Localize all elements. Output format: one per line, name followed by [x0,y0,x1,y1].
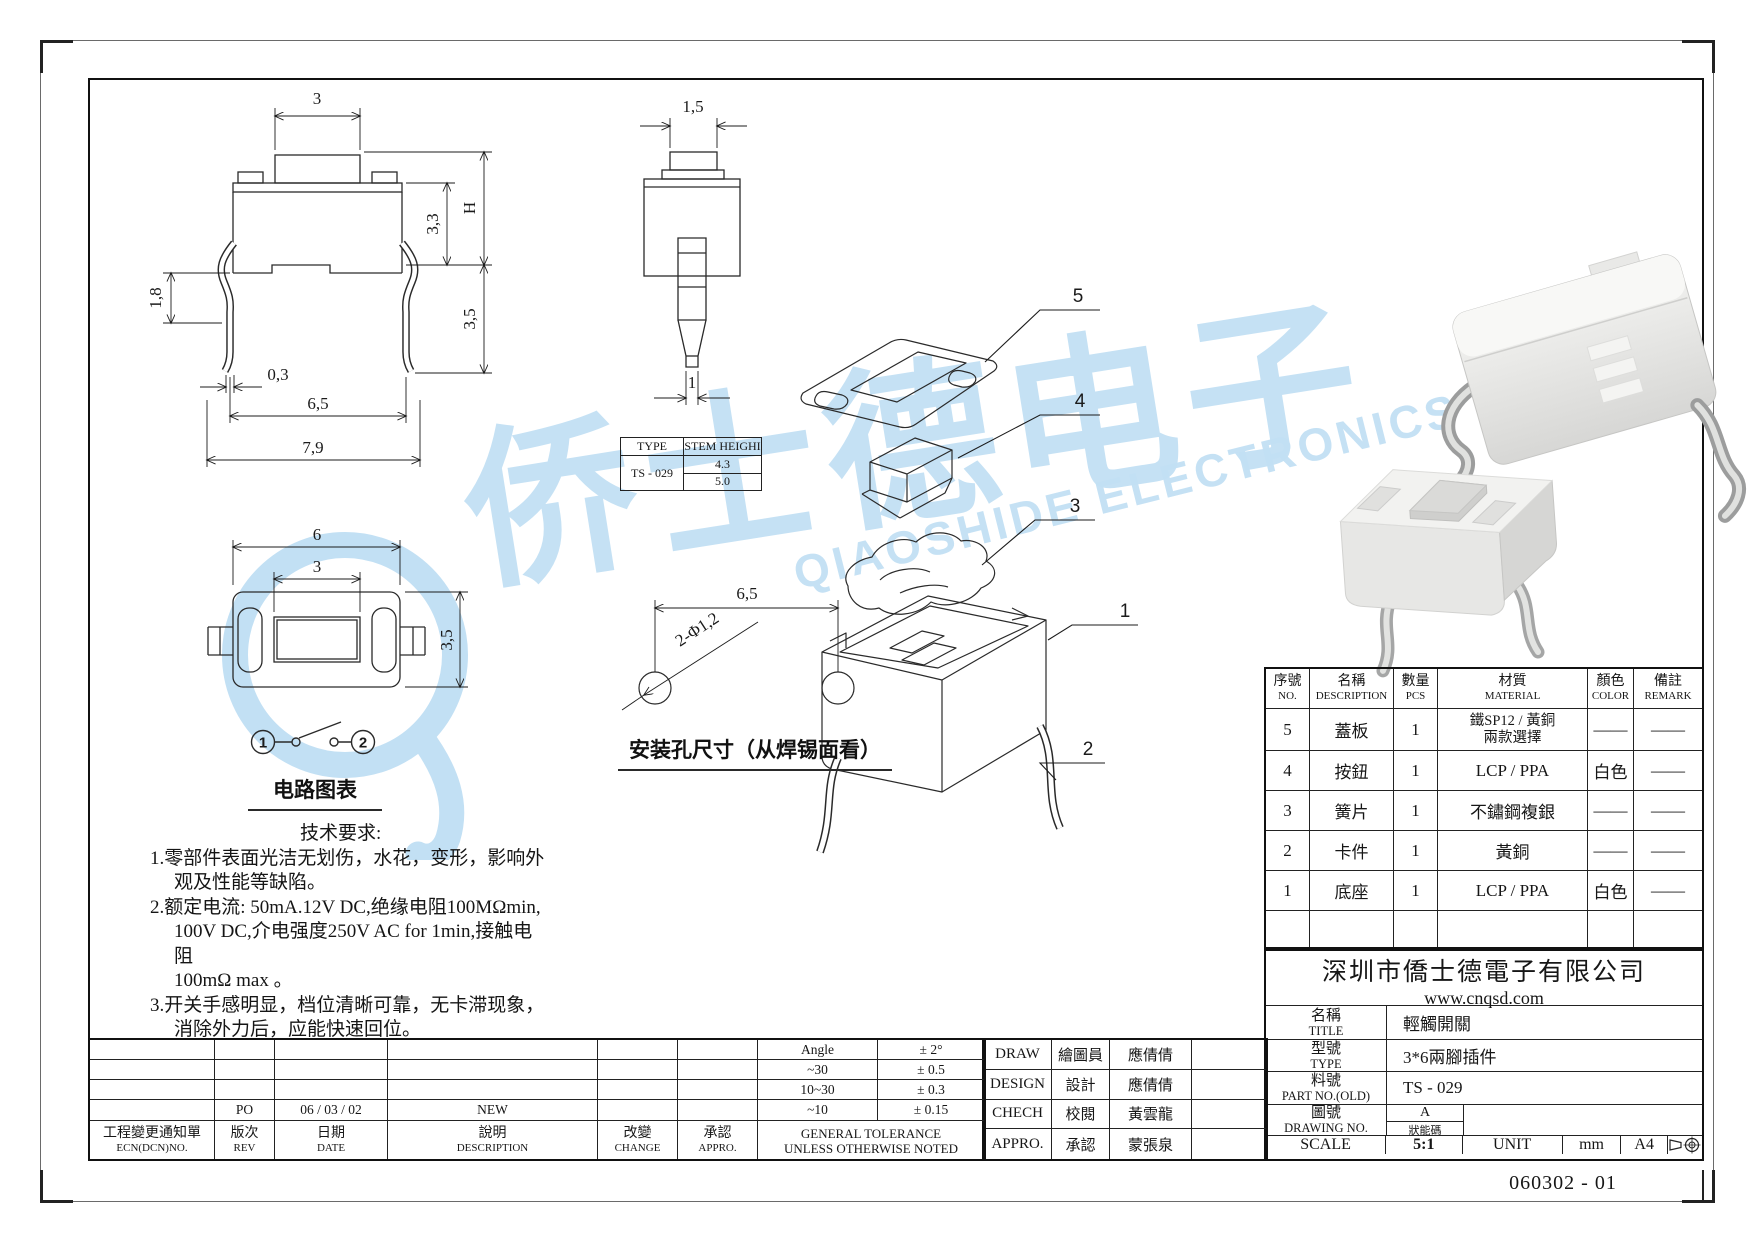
general-tolerance-note: GENERAL TOLERANCEUNLESS OTHERWISE NOTED [758,1121,984,1159]
stem-table-height1: 4.3 [684,456,761,474]
tech-line: 1.零部件表面光洁无划伤，水花，变形，影响外 [150,847,550,872]
tech-line: 100V DC,介电强度250V AC for 1min,接触电阻 [150,920,550,969]
parts-row-qty: 1 [1394,831,1438,871]
circuit-diagram-label: 电路图表 [248,774,382,811]
parts-row-name: 蓋板 [1310,709,1394,751]
parts-empty-cell [1438,911,1588,949]
dim-front-leg-thickness: 0,3 [267,365,288,384]
border-tick [1702,1170,1704,1200]
parts-empty-cell [1634,911,1702,949]
exploded-view [801,339,1060,852]
rev-empty [275,1040,388,1060]
rev-header-ecn: 工程變更通知單ECN(DCN)NO. [90,1121,215,1159]
parts-row-name: 底座 [1310,871,1394,911]
parts-row-color: 白色 [1588,751,1634,791]
sig-role-en: DESIGN [984,1070,1052,1100]
rev-empty [678,1060,758,1080]
callout-1: 1 [1120,601,1131,622]
technical-requirements: 技术要求: 1.零部件表面光洁无划伤，水花，变形，影响外 观及性能等缺陷。 2.… [150,822,550,1043]
dim-front-overall-width: 7,9 [302,438,323,457]
revision-table: Angle ± 2° ~30 ± 0.5 10~30 ± 0.3 PO 06 /… [88,1038,986,1161]
tol-range: ~10 [758,1100,878,1121]
dim-front-below-seat: 3,5 [460,308,479,329]
stem-table-height2: 5.0 [684,474,761,491]
callout-2: 2 [1083,739,1094,760]
parts-row-qty: 1 [1394,751,1438,791]
signature-table: DRAW 繪圖員 應倩倩 DESIGN 設計 應倩倩 CHECH 校閱 黃雲龍 … [982,1038,1268,1161]
stem-height-table: TYPE STEM HEIGHI TS - 029 4.3 5.0 [620,437,762,491]
top-view-dimensions [233,540,468,687]
parts-header-qty: 數量PCS [1394,669,1438,709]
rev-empty [598,1040,678,1060]
parts-row-color: —— [1588,831,1634,871]
sheet-size: A4 [1621,1136,1668,1154]
parts-empty-cell [1310,911,1394,949]
company-header: 深圳市僑士德電子有限公司 www.cnqsd.com [1266,949,1702,1006]
rev-empty [275,1060,388,1080]
parts-row-qty: 1 [1394,791,1438,831]
rev-empty [90,1080,215,1100]
sig-name: 黃雲龍 [1110,1100,1192,1130]
stem-table-col-type: TYPE [621,438,684,455]
parts-row-name: 按鈕 [1310,751,1394,791]
rev-empty [90,1100,215,1121]
tech-line: 100mΩ max 。 [150,969,550,994]
parts-row-material: LCP / PPA [1438,751,1588,791]
sig-role-en: DRAW [984,1040,1052,1070]
part-no-row: 料號PART NO.(OLD) TS - 029 [1266,1072,1702,1105]
stem-table-type-value: TS - 029 [621,456,684,490]
front-view-dimensions [163,108,492,467]
dim-front-body-height: 3,3 [423,213,442,234]
product-photo-bottom [1337,459,1564,673]
mounting-hole-label: 安装孔尺寸（从焊锡面看） [618,734,892,771]
sig-name: 應倩倩 [1110,1040,1192,1070]
sig-role-zh: 校閱 [1052,1100,1110,1130]
side-view [644,152,740,367]
parts-row-color: —— [1588,709,1634,751]
top-view [208,592,425,687]
rev-empty [678,1100,758,1121]
mounting-hole-dimensions [622,600,838,710]
drawing-no-row: 圖號DRAWING NO. A 狀能碼 [1266,1105,1702,1136]
rev-row-date: 06 / 03 / 02 [275,1100,388,1121]
product-type: 3*6兩腳插件 [1387,1040,1702,1071]
rev-empty [90,1060,215,1080]
rev-empty [215,1060,275,1080]
rev-empty [598,1060,678,1080]
tol-range: 10~30 [758,1080,878,1100]
dim-front-button-width: 3 [313,89,322,108]
parts-row-material: LCP / PPA [1438,871,1588,911]
callout-4: 4 [1075,391,1086,412]
exploded-callout-leaders [958,310,1138,780]
rev-empty [215,1040,275,1060]
tol-range: Angle [758,1040,878,1060]
circuit-terminal-1: 1 [259,735,267,752]
front-view [221,155,415,371]
sig-empty [1192,1129,1266,1159]
parts-header-name: 名稱DESCRIPTION [1310,669,1394,709]
scale-label: SCALE [1266,1136,1386,1154]
dim-front-leg-pitch: 6,5 [307,394,328,413]
dim-front-leg-bend: 1,8 [146,287,165,308]
sig-name: 蒙張泉 [1110,1129,1192,1159]
parts-row-remark: —— [1634,871,1702,911]
unit-value: mm [1563,1136,1622,1154]
parts-row-material: 不鏽鋼複銀 [1438,791,1588,831]
parts-row-name: 簧片 [1310,791,1394,831]
rev-row-desc: NEW [388,1100,598,1121]
sig-role-en: APPRO. [984,1129,1052,1159]
rev-empty [388,1080,598,1100]
parts-empty-cell [1266,911,1310,949]
parts-empty-cell [1394,911,1438,949]
rev-header-date: 日期DATE [275,1121,388,1159]
title-block: 深圳市僑士德電子有限公司 www.cnqsd.com 名稱TITLE 輕觸開關 … [1264,947,1704,1161]
parts-row-color: —— [1588,791,1634,831]
sig-role-zh: 繪圖員 [1052,1040,1110,1070]
side-view-dimensions [640,118,747,405]
parts-row-remark: —— [1634,791,1702,831]
scale-row: SCALE 5:1 UNIT mm A4 [1266,1136,1702,1154]
rev-header-rev: 版次REV [215,1121,275,1159]
rev-empty [598,1080,678,1100]
parts-empty-cell [1588,911,1634,949]
sig-empty [1192,1100,1266,1130]
dim-front-total-height: H [460,202,479,214]
sig-empty [1192,1040,1266,1070]
tol-value: ± 0.5 [878,1060,984,1080]
drawing-revision: A [1387,1105,1463,1122]
parts-row-material: 黃銅 [1438,831,1588,871]
tech-line: 3.开关手感明显，档位清晰可靠，无卡滞现象， [150,994,550,1019]
parts-row-color: 白色 [1588,871,1634,911]
rev-empty [388,1040,598,1060]
drawing-number-value [1464,1105,1702,1135]
tol-range: ~30 [758,1060,878,1080]
sig-role-zh: 設計 [1052,1070,1110,1100]
parts-table: 序號NO. 名稱DESCRIPTION 數量PCS 材質MATERIAL 顏色C… [1264,667,1704,951]
parts-row-qty: 1 [1394,709,1438,751]
parts-row-no: 2 [1266,831,1310,871]
rev-empty [275,1080,388,1100]
tech-line: 2.额定电流: 50mA.12V DC,绝缘电阻100MΩmin, [150,896,550,921]
rev-header-desc: 說明DESCRIPTION [388,1121,598,1159]
tol-value: ± 2° [878,1040,984,1060]
sig-role-zh: 承認 [1052,1129,1110,1159]
engineering-drawing-sheet: 侨士德电子 QIAOSHIDE ELECTRONICS [0,0,1753,1240]
parts-header-material: 材質MATERIAL [1438,669,1588,709]
product-title: 輕觸開關 [1387,1006,1702,1039]
tech-line: 观及性能等缺陷。 [150,871,550,896]
part-number: TS - 029 [1387,1072,1702,1104]
type-row: 型號TYPE 3*6兩腳插件 [1266,1040,1702,1072]
dim-top-button: 3 [313,557,322,576]
projection-symbol [1668,1136,1702,1154]
company-name: 深圳市僑士德電子有限公司 [1266,949,1702,988]
rev-header-appro: 承認APPRO. [678,1121,758,1159]
parts-row-remark: —— [1634,709,1702,751]
circuit-diagram [252,722,375,754]
rev-empty [598,1100,678,1121]
dim-top-width: 3,5 [437,629,456,650]
dim-hole-pitch: 6,5 [736,584,757,603]
tol-value: ± 0.3 [878,1080,984,1100]
parts-header-no: 序號NO. [1266,669,1310,709]
parts-header-remark: 備註REMARK [1634,669,1702,709]
parts-row-no: 3 [1266,791,1310,831]
rev-row-rev: PO [215,1100,275,1121]
parts-row-remark: —— [1634,751,1702,791]
rev-empty [678,1040,758,1060]
rev-header-change: 改變CHANGE [598,1121,678,1159]
parts-row-qty: 1 [1394,871,1438,911]
dim-side-stem-tip: 1 [688,373,697,392]
sig-empty [1192,1070,1266,1100]
tech-title: 技术要求: [150,822,550,847]
rev-empty [678,1080,758,1100]
parts-row-name: 卡件 [1310,831,1394,871]
dim-side-cap-width: 1,5 [682,97,703,116]
parts-row-no: 1 [1266,871,1310,911]
unit-label: UNIT [1463,1136,1563,1154]
scale-value: 5:1 [1386,1136,1462,1154]
title-row: 名稱TITLE 輕觸開關 [1266,1006,1702,1040]
parts-row-remark: —— [1634,831,1702,871]
rev-empty [215,1080,275,1100]
rev-empty [388,1060,598,1080]
dim-hole-size: 2-Φ1,2 [672,608,722,650]
callout-3: 3 [1070,496,1081,517]
callout-5: 5 [1073,286,1084,307]
parts-header-color: 顏色COLOR [1588,669,1634,709]
tol-value: ± 0.15 [878,1100,984,1121]
rev-empty [90,1040,215,1060]
parts-row-no: 5 [1266,709,1310,751]
circuit-terminal-2: 2 [359,735,367,752]
sig-name: 應倩倩 [1110,1070,1192,1100]
sig-role-en: CHECH [984,1100,1052,1130]
parts-row-material: 鐵SP12 / 黃銅兩款選擇 [1438,709,1588,751]
parts-row-no: 4 [1266,751,1310,791]
stem-table-col-height: STEM HEIGHI [684,438,761,455]
document-number: 060302 - 01 [1478,1172,1648,1195]
dim-top-length: 6 [313,525,322,544]
